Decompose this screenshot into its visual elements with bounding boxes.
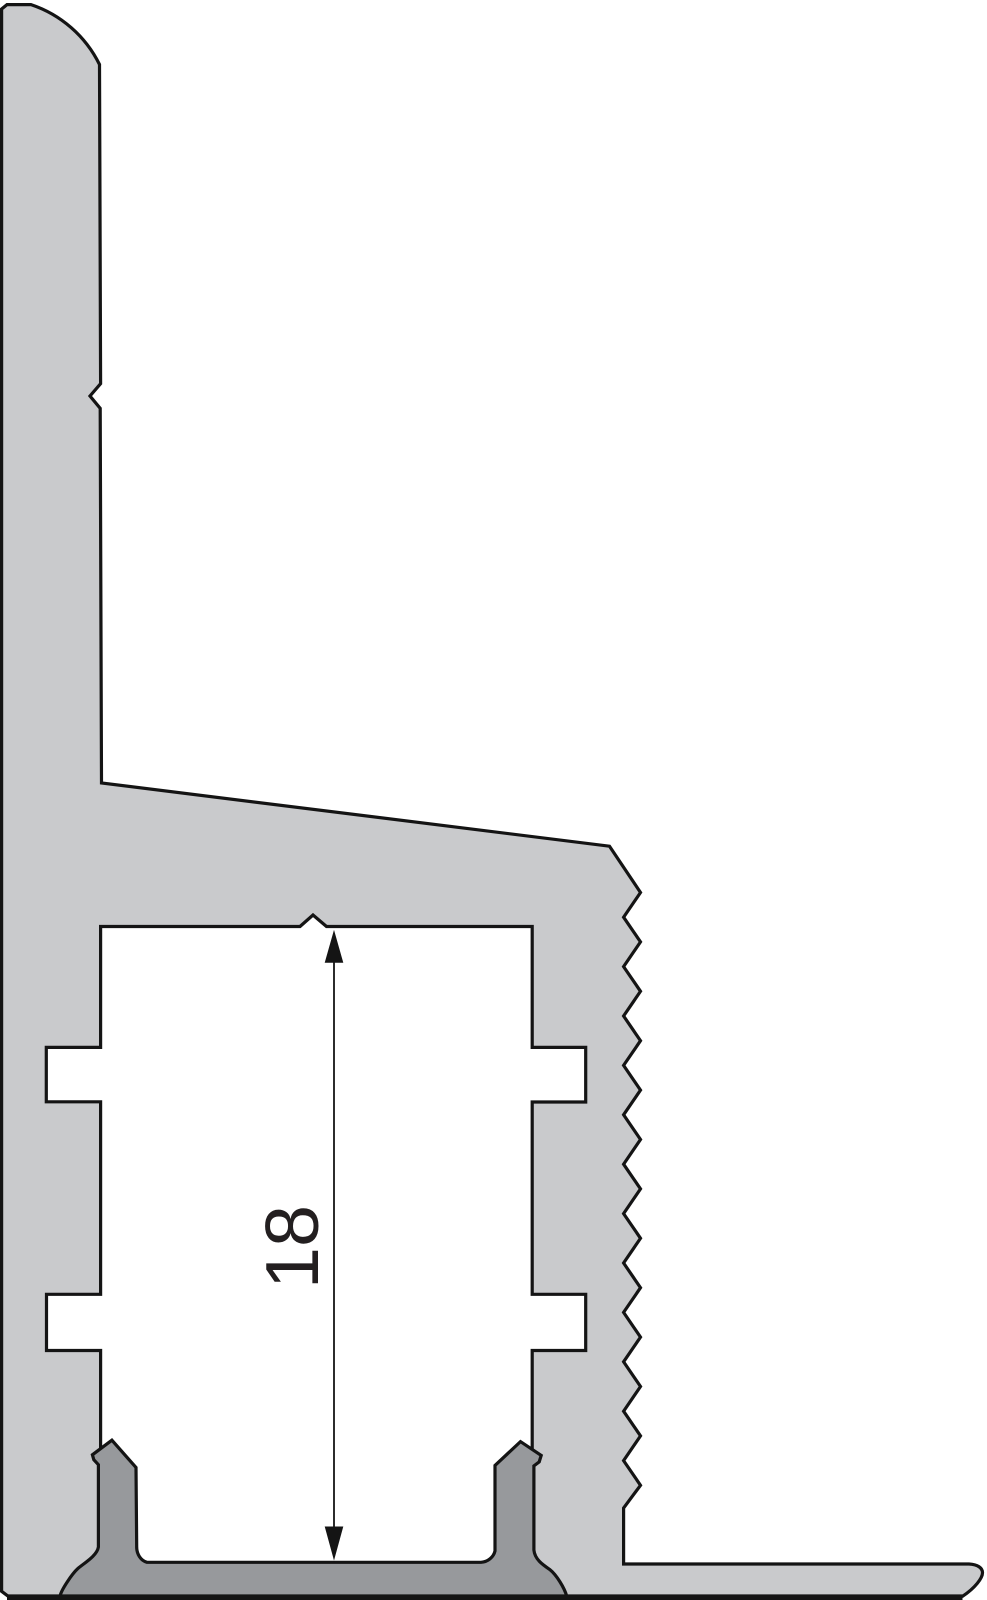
svg-text:18: 18 <box>250 1205 334 1289</box>
